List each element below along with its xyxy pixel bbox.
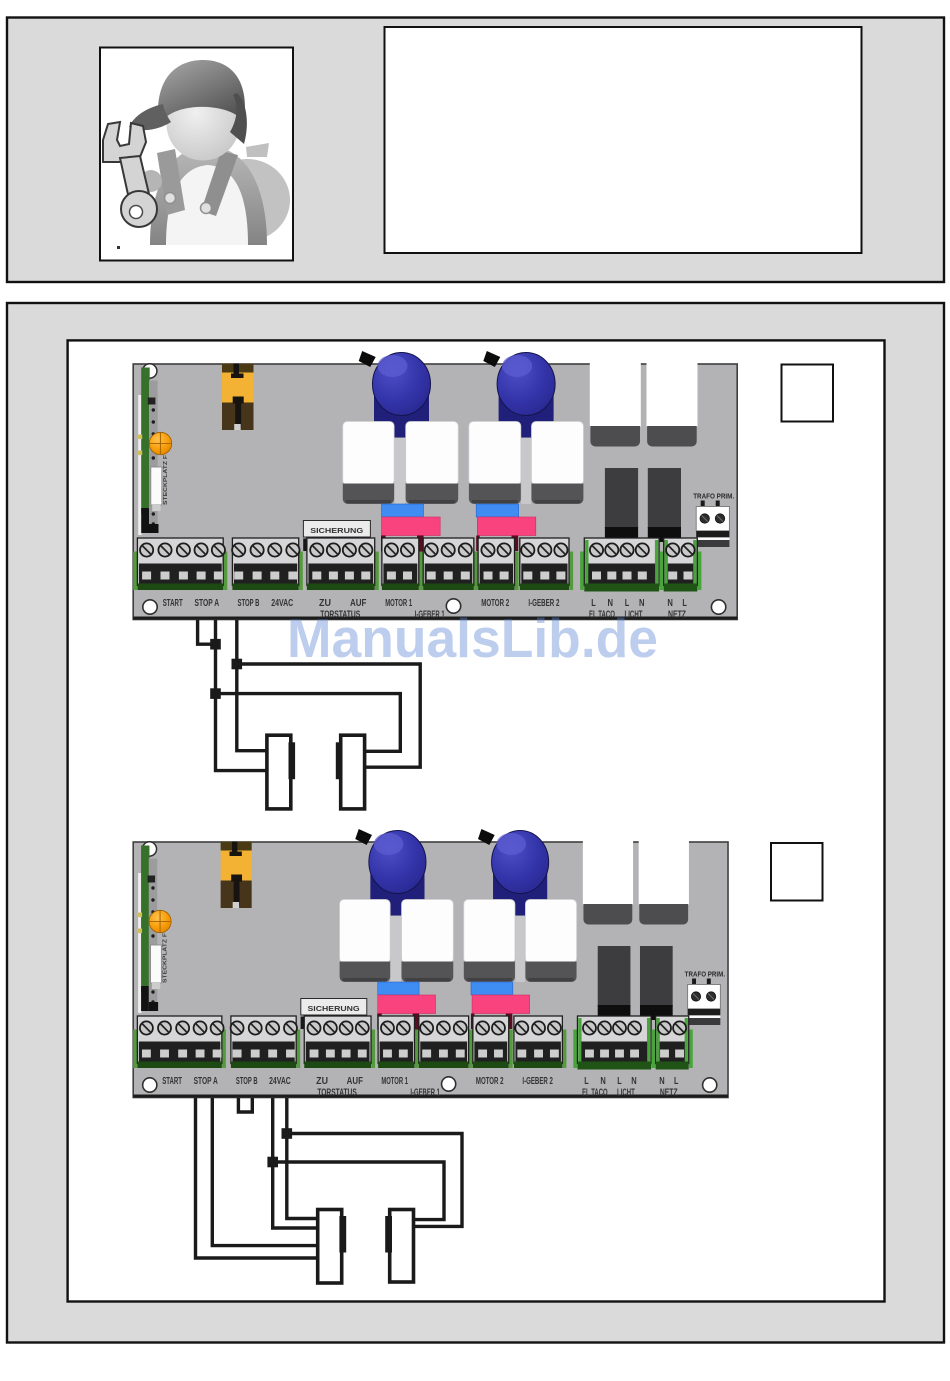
- svg-text:ManualsLib.de: ManualsLib.de: [287, 607, 658, 669]
